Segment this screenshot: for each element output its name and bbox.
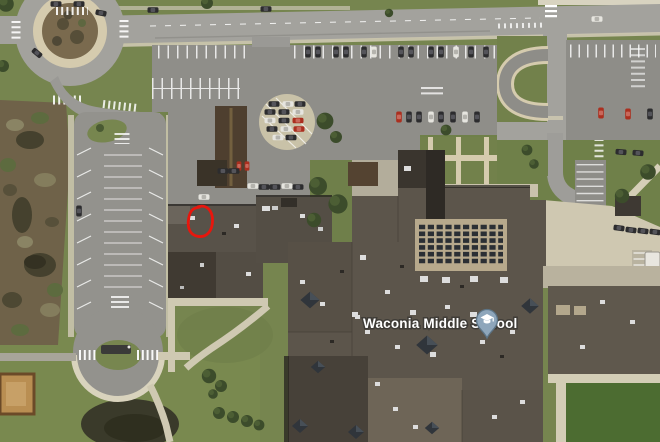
east-wing <box>548 286 660 374</box>
bus-shelter <box>101 345 131 354</box>
small-structure <box>0 374 34 414</box>
sports-field <box>548 372 660 442</box>
wetland <box>0 100 70 345</box>
satellite-map-canvas[interactable]: Waconia Middle School <box>0 0 660 442</box>
west-wing <box>168 204 263 298</box>
west-path <box>0 353 76 361</box>
rooftop-unit <box>352 312 358 317</box>
west-parking-lot <box>68 112 172 399</box>
solar-array <box>415 219 507 271</box>
bus-loop-driveway <box>497 36 548 122</box>
map-viewport[interactable]: Waconia Middle School <box>0 0 660 442</box>
